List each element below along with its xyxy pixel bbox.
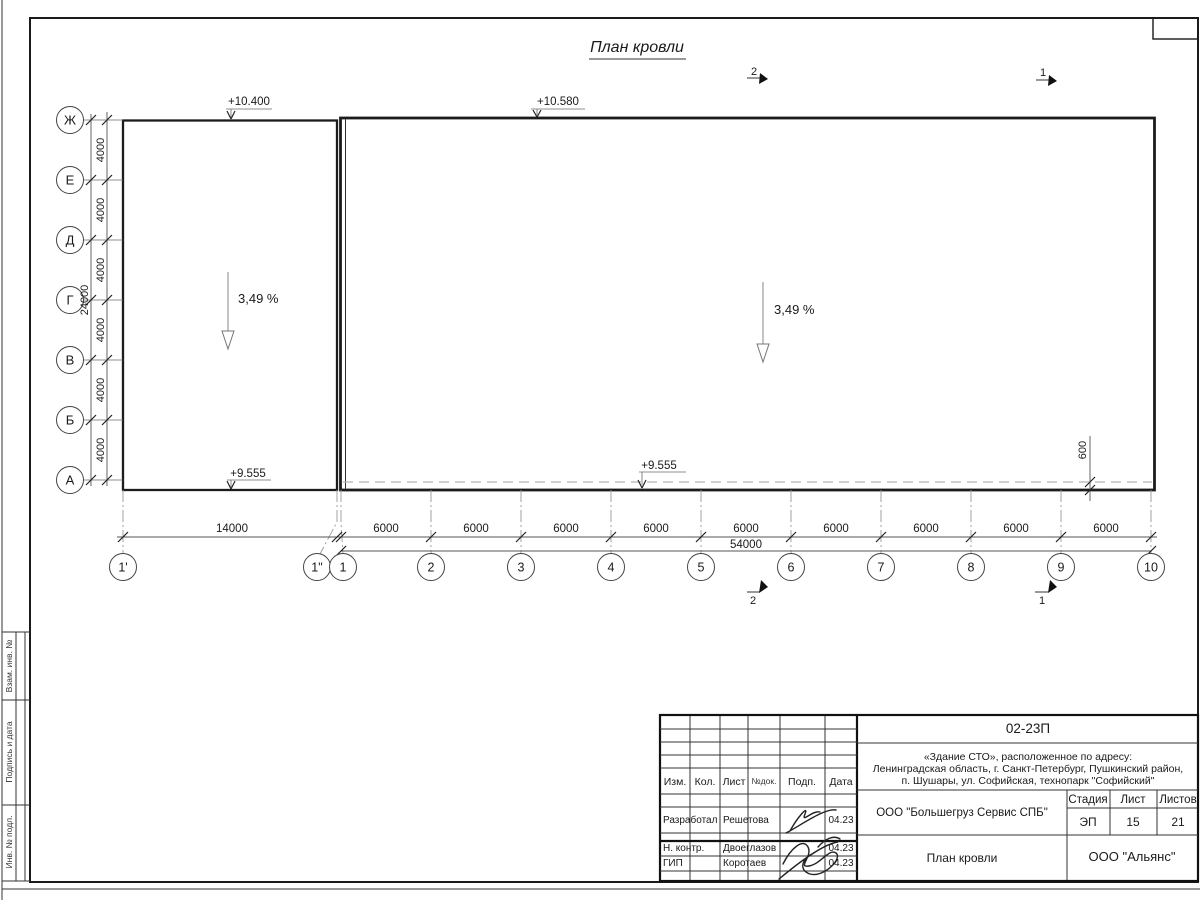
- drawing-sheet: Взам. инв. № Подпись и дата Инв. № подл.…: [0, 0, 1200, 900]
- axis-label-v: В: [66, 353, 75, 368]
- axis-label-zh: Ж: [64, 113, 76, 128]
- dim-600: 600: [1077, 441, 1089, 459]
- axis-label-10: 10: [1144, 561, 1158, 575]
- stamp-stage-label: Стадия: [1068, 794, 1107, 806]
- stamp-header-podp: Подп.: [788, 776, 816, 788]
- stamp-name-developer: Решетова: [723, 815, 769, 826]
- dim-6000-6: 6000: [823, 523, 849, 535]
- dim-6000-9: 6000: [1093, 523, 1119, 535]
- stamp-role-ncontrol: Н. контр.: [663, 843, 704, 854]
- axis-label-6: 6: [788, 561, 795, 575]
- dim-54000-total: 54000: [730, 539, 762, 551]
- elevation-10580: +10.580: [537, 96, 579, 108]
- slope-arrows: 3,49 % 3,49 %: [222, 272, 815, 362]
- stamp-header-kol: Кол.: [695, 776, 716, 788]
- strip-label-inv: Инв. № подл.: [4, 816, 14, 869]
- stamp-header-list: Лист: [723, 776, 746, 788]
- stamp-stage-value: ЭП: [1079, 815, 1096, 829]
- stamp-name-gip: Коротаев: [723, 858, 766, 869]
- stamp-header-ndok: №док.: [752, 776, 777, 786]
- stamp-role-gip: ГИП: [663, 858, 683, 869]
- strip-label-podpis: Подпись и дата: [4, 721, 14, 782]
- stamp-project-line2: Ленинградская область, г. Санкт-Петербур…: [873, 763, 1183, 775]
- stamp-sheets-value: 21: [1171, 815, 1185, 829]
- axis-label-9: 9: [1058, 561, 1065, 575]
- dim-4000-2: 4000: [95, 198, 107, 222]
- axis-label-1: 1: [340, 561, 347, 575]
- dim-24000-total: 24000: [79, 285, 91, 316]
- drawing-title: План кровли: [589, 39, 686, 59]
- axis-label-5: 5: [698, 561, 705, 575]
- section-mark-1-top: 1: [1040, 67, 1046, 79]
- slope-left: 3,49 %: [238, 291, 279, 306]
- elevation-9555-left: +9.555: [230, 468, 266, 480]
- stamp-date-gip: 04.23: [828, 858, 853, 869]
- stamp-header-data: Дата: [829, 776, 852, 788]
- stamp-client: ООО "Большегруз Сервис СПБ": [876, 807, 1048, 819]
- axis-label-1p: 1': [118, 561, 127, 575]
- elevation-10400: +10.400: [228, 96, 270, 108]
- axis-label-b: Б: [66, 413, 75, 428]
- corner-stamp-box: [1153, 18, 1198, 39]
- main-building-outline: [341, 118, 1155, 490]
- axis-label-1pp: 1": [311, 561, 322, 575]
- axis-label-g: Г: [66, 293, 73, 308]
- section-mark-1-bottom: 1: [1039, 595, 1045, 607]
- elevation-marks: +10.400 +10.580 +9.555 +9.555: [226, 96, 686, 489]
- title-block: Изм. Кол. Лист №док. Подп. Дата Разработ…: [660, 715, 1198, 881]
- stamp-project-line1: «Здание СТО», расположенное по адресу:: [924, 751, 1132, 763]
- dim-6000-2: 6000: [463, 523, 489, 535]
- dim-6000-8: 6000: [1003, 523, 1029, 535]
- section-mark-2-bottom: 2: [750, 595, 756, 607]
- axis-label-7: 7: [878, 561, 885, 575]
- left-building-outline: [123, 121, 337, 491]
- stamp-contractor: ООО "Альянс": [1089, 849, 1176, 864]
- axis-label-2: 2: [428, 561, 435, 575]
- page-title: План кровли: [590, 39, 684, 56]
- bottom-axes-lines: [117, 490, 1157, 556]
- dim-4000-6: 4000: [95, 438, 107, 462]
- axis-label-e: Е: [66, 173, 75, 188]
- dim-4000-3: 4000: [95, 258, 107, 282]
- slope-arrowhead-right: [757, 344, 769, 362]
- slope-right: 3,49 %: [774, 302, 815, 317]
- elevation-9555-mid: +9.555: [641, 460, 677, 472]
- strip-label-vzam: Взам. инв. №: [4, 640, 14, 693]
- axis-label-3: 3: [518, 561, 525, 575]
- bottom-axis-bubbles: 1' 1" 1 2 3 4 5 6 7 8 9 10: [110, 554, 1165, 581]
- stamp-role-developer: Разработал: [663, 814, 718, 826]
- dim-6000-3: 6000: [553, 523, 579, 535]
- axis-label-4: 4: [608, 561, 615, 575]
- dim-4000-4: 4000: [95, 318, 107, 342]
- stamp-project-line3: п. Шушары, ул. Софийская, технопарк "Соф…: [902, 775, 1155, 787]
- stamp-header-izm: Изм.: [664, 776, 687, 788]
- stamp-doc-number: 02-23П: [1006, 721, 1050, 736]
- roof-plan-svg: Взам. инв. № Подпись и дата Инв. № подл.…: [0, 0, 1200, 900]
- frame-side-strip: Взам. инв. № Подпись и дата Инв. № подл.: [2, 632, 30, 881]
- dim-6000-1: 6000: [373, 523, 399, 535]
- axis-label-d: Д: [66, 233, 75, 248]
- slope-arrowhead-left: [222, 331, 234, 349]
- dim-6000-7: 6000: [913, 523, 939, 535]
- dim-6000-5: 6000: [733, 523, 759, 535]
- axis-label-8: 8: [968, 561, 975, 575]
- dim-4000-1: 4000: [95, 138, 107, 162]
- dim-6000-4: 6000: [643, 523, 669, 535]
- axis-label-a: А: [66, 473, 75, 488]
- stamp-name-ncontrol: Двоеглазов: [723, 843, 776, 854]
- section-mark-2-top: 2: [751, 66, 757, 78]
- stamp-sheet-label: Лист: [1121, 794, 1147, 806]
- stamp-sheets-label: Листов: [1159, 794, 1196, 806]
- stamp-date-developer: 04.23: [828, 815, 853, 826]
- stamp-sheet-title: План кровли: [927, 851, 998, 865]
- stamp-sheet-value: 15: [1126, 815, 1140, 829]
- dim-14000: 14000: [216, 523, 248, 535]
- dim-4000-5: 4000: [95, 378, 107, 402]
